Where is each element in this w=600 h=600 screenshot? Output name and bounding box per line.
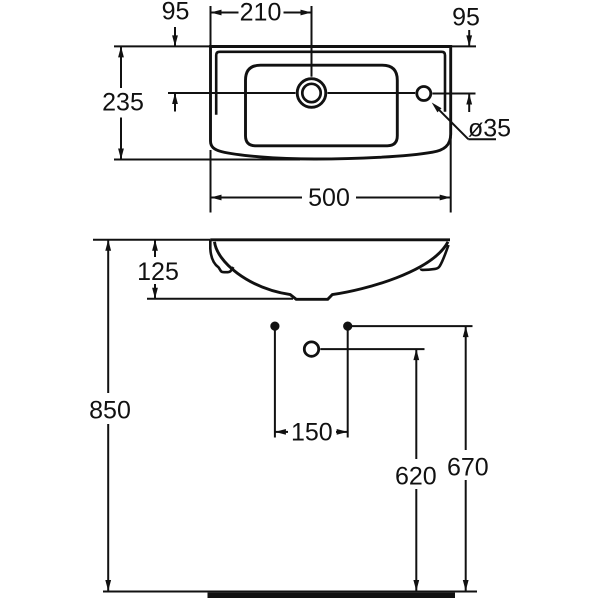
- svg-text:125: 125: [137, 258, 179, 286]
- svg-text:850: 850: [89, 397, 131, 425]
- svg-text:95: 95: [162, 0, 190, 26]
- svg-text:95: 95: [452, 4, 480, 32]
- svg-text:150: 150: [291, 418, 333, 446]
- svg-text:210: 210: [240, 0, 282, 26]
- svg-text:500: 500: [308, 184, 350, 212]
- svg-text:ø35: ø35: [468, 115, 511, 143]
- svg-text:620: 620: [395, 463, 437, 491]
- svg-text:235: 235: [102, 88, 144, 116]
- svg-text:670: 670: [447, 454, 489, 482]
